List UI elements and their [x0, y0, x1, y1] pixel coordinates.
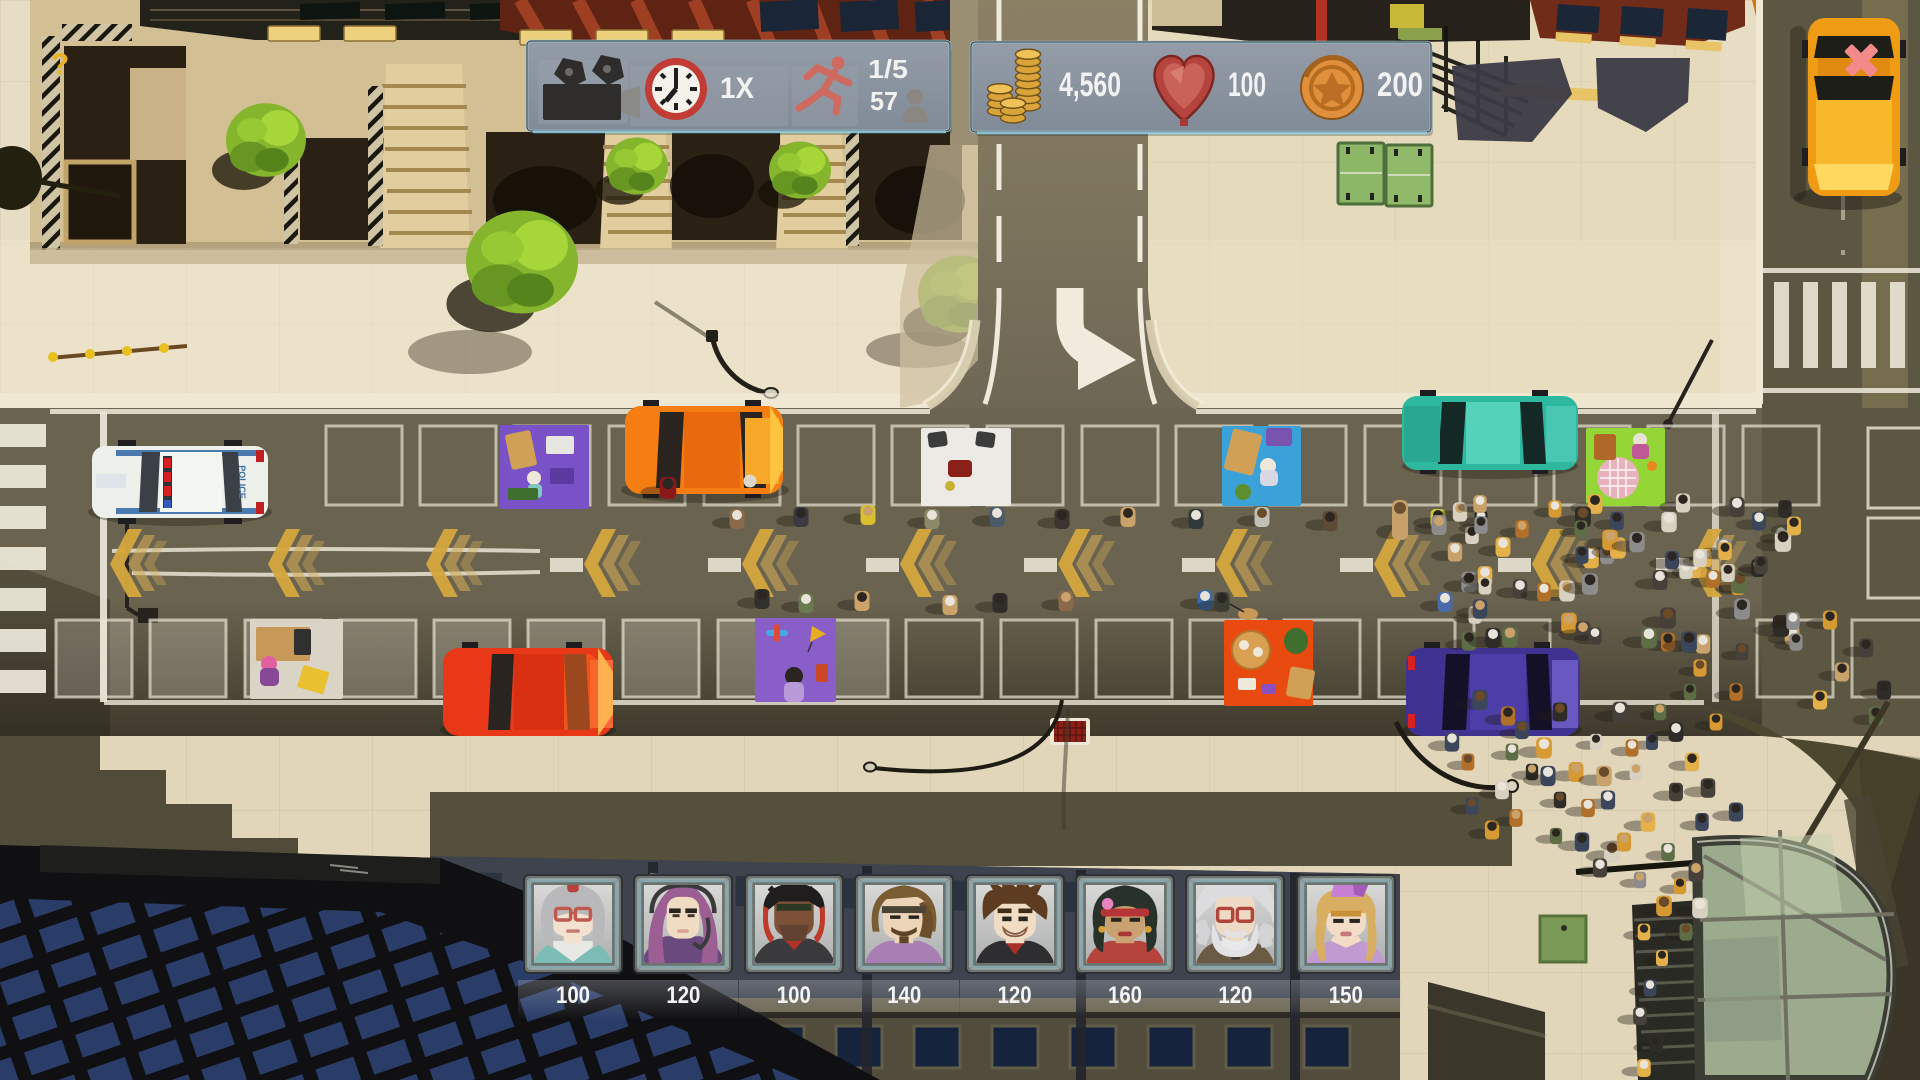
svg-text:100: 100	[777, 982, 811, 1009]
svg-text:140: 140	[887, 982, 921, 1009]
svg-text:150: 150	[1329, 982, 1363, 1009]
svg-text:120: 120	[1218, 982, 1252, 1009]
svg-text:120: 120	[666, 982, 700, 1009]
svg-text:120: 120	[998, 982, 1032, 1009]
svg-text:POLICE: POLICE	[237, 465, 247, 499]
svg-text:1/5: 1/5	[868, 54, 908, 84]
svg-text:100: 100	[1228, 66, 1266, 104]
svg-text:160: 160	[1108, 982, 1142, 1009]
svg-text:200: 200	[1377, 66, 1423, 104]
svg-text:57: 57	[870, 86, 898, 116]
svg-text:4,560: 4,560	[1059, 66, 1121, 104]
svg-text:?: ?	[51, 48, 69, 81]
svg-text:100: 100	[556, 982, 590, 1009]
svg-text:1X: 1X	[720, 72, 754, 105]
